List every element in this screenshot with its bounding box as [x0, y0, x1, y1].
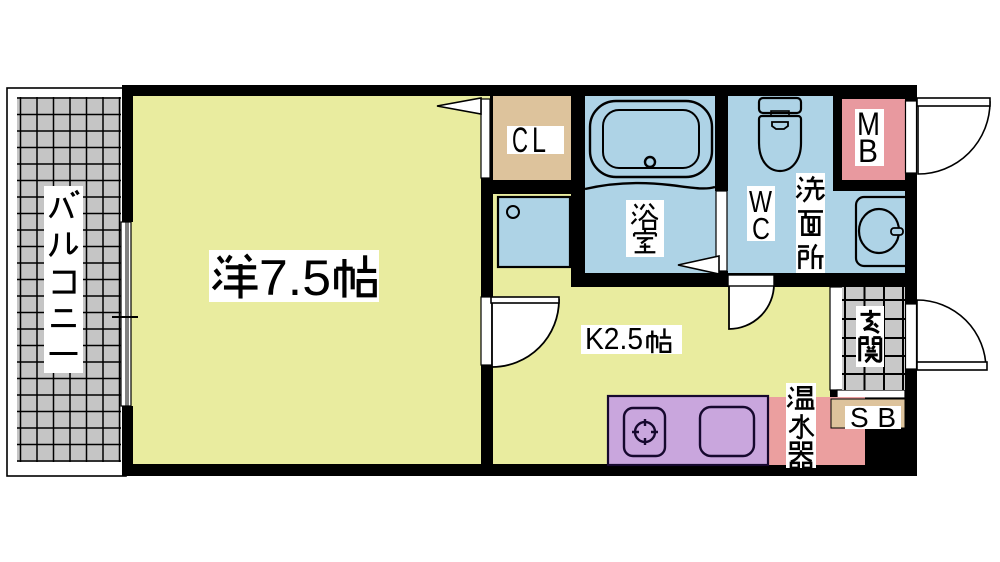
svg-text:C: C [512, 121, 528, 160]
svg-text:K2.5: K2.5 [585, 321, 643, 356]
svg-text:L: L [532, 121, 546, 160]
svg-text:C: C [752, 211, 770, 246]
svg-text:B: B [858, 133, 878, 169]
svg-text:7.5: 7.5 [259, 250, 331, 306]
